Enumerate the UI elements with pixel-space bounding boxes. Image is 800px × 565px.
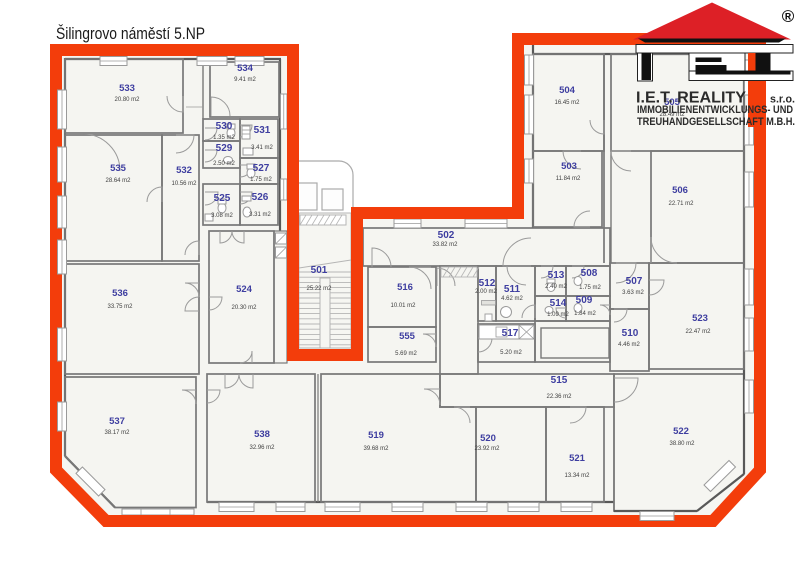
svg-text:1.75 m2: 1.75 m2	[250, 177, 272, 183]
svg-text:5.20 m2: 5.20 m2	[500, 350, 522, 356]
svg-text:16.45 m2: 16.45 m2	[554, 100, 580, 106]
svg-text:502: 502	[438, 230, 455, 241]
svg-text:1.84 m2: 1.84 m2	[574, 311, 596, 317]
svg-text:1.09 m2: 1.09 m2	[547, 312, 569, 318]
svg-text:515: 515	[551, 375, 568, 386]
svg-text:538: 538	[254, 429, 270, 440]
svg-text:516: 516	[397, 282, 413, 293]
svg-text:536: 536	[112, 288, 128, 299]
svg-text:506: 506	[672, 185, 688, 196]
svg-text:508: 508	[581, 268, 598, 279]
svg-text:507: 507	[626, 276, 643, 287]
svg-text:532: 532	[176, 165, 192, 176]
svg-text:503: 503	[561, 161, 577, 172]
svg-text:530: 530	[216, 121, 233, 132]
svg-text:514: 514	[550, 298, 567, 309]
svg-text:2.50 m2: 2.50 m2	[213, 161, 235, 167]
svg-text:520: 520	[480, 433, 496, 444]
svg-text:33.82 m2: 33.82 m2	[432, 242, 458, 248]
svg-text:4.46 m2: 4.46 m2	[618, 342, 640, 348]
svg-text:524: 524	[236, 284, 253, 295]
svg-text:1.75 m2: 1.75 m2	[579, 285, 601, 291]
svg-text:22.71 m2: 22.71 m2	[668, 201, 694, 207]
svg-text:529: 529	[216, 143, 233, 154]
svg-text:13.34 m2: 13.34 m2	[564, 473, 590, 479]
svg-text:3.41 m2: 3.41 m2	[251, 145, 273, 151]
svg-text:512: 512	[479, 278, 496, 289]
svg-text:534: 534	[237, 63, 254, 74]
svg-text:501: 501	[311, 265, 328, 276]
svg-text:25.22 m2: 25.22 m2	[306, 286, 332, 292]
svg-text:IMMOBILIENENTWICKLUNGS- UND: IMMOBILIENENTWICKLUNGS- UND	[637, 104, 793, 116]
svg-text:511: 511	[504, 284, 521, 295]
svg-text:537: 537	[109, 416, 125, 427]
svg-text:20.80 m2: 20.80 m2	[114, 97, 140, 103]
svg-text:4.62 m2: 4.62 m2	[501, 296, 523, 302]
svg-text:535: 535	[110, 163, 127, 174]
svg-text:5.69 m2: 5.69 m2	[395, 351, 417, 357]
svg-text:519: 519	[368, 430, 384, 441]
svg-text:39.68 m2: 39.68 m2	[363, 446, 389, 452]
svg-text:521: 521	[569, 453, 586, 464]
svg-text:2.00 m2: 2.00 m2	[475, 289, 497, 295]
svg-text:531: 531	[254, 125, 271, 136]
svg-text:22.47 m2: 22.47 m2	[685, 329, 711, 335]
svg-text:522: 522	[673, 426, 689, 437]
svg-text:533: 533	[119, 83, 135, 94]
svg-text:22.36 m2: 22.36 m2	[546, 394, 572, 400]
svg-text:32.96 m2: 32.96 m2	[249, 445, 275, 451]
svg-text:504: 504	[559, 85, 576, 96]
svg-text:33.75 m2: 33.75 m2	[107, 304, 133, 310]
svg-text:TREUHANDGESELLSCHAFT M.B.H.: TREUHANDGESELLSCHAFT M.B.H.	[637, 116, 795, 128]
svg-text:526: 526	[252, 192, 269, 203]
svg-text:523: 523	[692, 313, 708, 324]
svg-text:3.63 m2: 3.63 m2	[622, 290, 644, 296]
svg-text:38.80 m2: 38.80 m2	[669, 441, 695, 447]
svg-text:11.84 m2: 11.84 m2	[556, 176, 581, 182]
svg-text:525: 525	[214, 193, 231, 204]
svg-text:517: 517	[502, 328, 519, 339]
svg-text:28.64 m2: 28.64 m2	[105, 178, 131, 184]
svg-text:527: 527	[253, 163, 270, 174]
svg-text:10.01 m2: 10.01 m2	[390, 303, 416, 309]
svg-text:10.56 m2: 10.56 m2	[171, 181, 197, 187]
svg-text:®: ®	[782, 7, 795, 26]
svg-text:3.08 m2: 3.08 m2	[211, 213, 233, 219]
svg-text:1.35 m2: 1.35 m2	[213, 135, 235, 141]
svg-text:Šilingrovo náměstí 5.NP: Šilingrovo náměstí 5.NP	[56, 24, 205, 43]
svg-text:2.40 m2: 2.40 m2	[545, 284, 567, 290]
svg-text:555: 555	[399, 331, 416, 342]
svg-text:510: 510	[622, 328, 639, 339]
svg-text:509: 509	[576, 295, 593, 306]
svg-text:9.41 m2: 9.41 m2	[234, 77, 256, 83]
svg-text:38.17 m2: 38.17 m2	[104, 430, 130, 436]
svg-text:20.30 m2: 20.30 m2	[231, 305, 257, 311]
svg-text:513: 513	[548, 270, 565, 281]
svg-text:23.92 m2: 23.92 m2	[474, 446, 500, 452]
svg-text:3.31 m2: 3.31 m2	[249, 212, 271, 218]
